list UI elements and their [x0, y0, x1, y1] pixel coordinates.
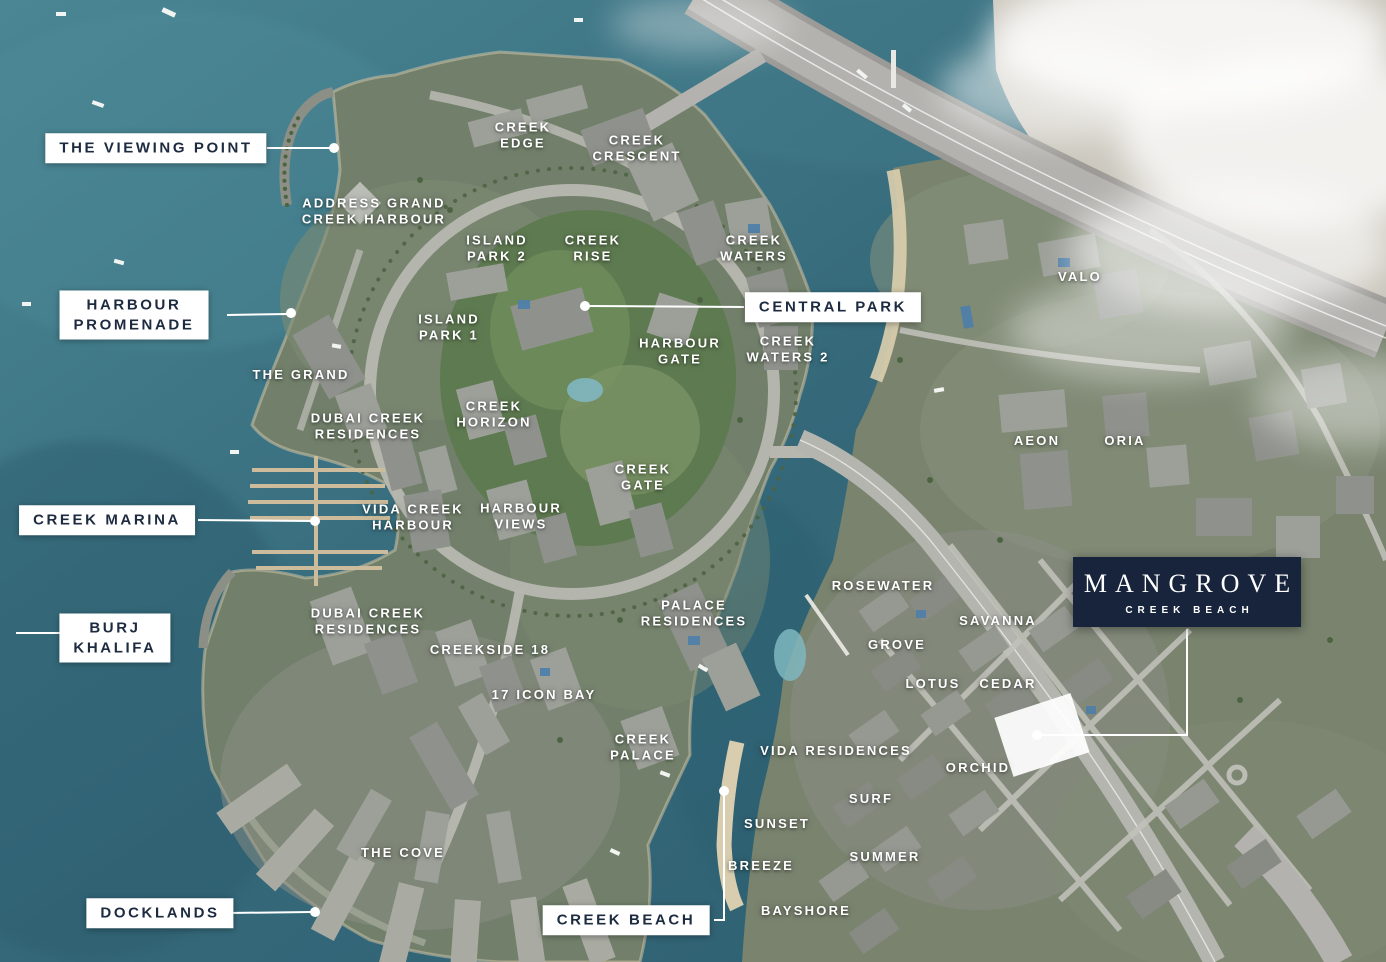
label-breeze: BREEZE	[728, 858, 794, 874]
label-creek-rise: CREEK RISE	[565, 232, 622, 263]
callout-creek-marina: CREEK MARINA	[19, 505, 195, 535]
label-harbour-gate: HARBOUR GATE	[639, 335, 721, 366]
feature-box-mangrove: MANGROVE CREEK BEACH	[1073, 557, 1301, 627]
label-vida-creek-harbour: VIDA CREEK HARBOUR	[362, 501, 464, 532]
callout-burj-khalifa: BURJ KHALIFA	[59, 614, 170, 663]
label-dubai-creek-residences-north: DUBAI CREEK RESIDENCES	[311, 410, 425, 441]
label-sunset: SUNSET	[744, 816, 810, 832]
label-creek-edge: CREEK EDGE	[495, 119, 552, 150]
label-dubai-creek-residences-south: DUBAI CREEK RESIDENCES	[311, 605, 425, 636]
label-summer: SUMMER	[850, 849, 921, 865]
callout-central-park: CENTRAL PARK	[745, 292, 921, 322]
label-island-park-2: ISLAND PARK 2	[466, 232, 528, 263]
label-creek-waters-2: CREEK WATERS 2	[746, 333, 829, 364]
label-orchid: ORCHID	[946, 760, 1010, 776]
label-surf: SURF	[849, 791, 893, 807]
masterplan-map: THE VIEWING POINT HARBOUR PROMENADE CENT…	[0, 0, 1386, 962]
label-bayshore: BAYSHORE	[761, 903, 851, 919]
label-creekside-18: CREEKSIDE 18	[430, 642, 550, 658]
label-harbour-views: HARBOUR VIEWS	[480, 500, 562, 531]
feature-title: MANGROVE	[1076, 569, 1298, 599]
label-creek-waters: CREEK WATERS	[720, 232, 788, 263]
label-palace-residences: PALACE RESIDENCES	[641, 597, 748, 628]
callout-creek-beach: CREEK BEACH	[543, 905, 710, 935]
callout-the-viewing-point: THE VIEWING POINT	[45, 133, 266, 163]
label-savanna: SAVANNA	[959, 613, 1037, 629]
label-address-grand-creek-harbour: ADDRESS GRAND CREEK HARBOUR	[302, 195, 446, 226]
label-lotus: LOTUS	[905, 676, 960, 692]
feature-subtitle: CREEK BEACH	[1120, 605, 1253, 616]
callout-harbour-promenade: HARBOUR PROMENADE	[60, 291, 209, 340]
label-oria: ORIA	[1104, 433, 1145, 449]
label-vida-residences: VIDA RESIDENCES	[760, 743, 912, 759]
label-cedar: CEDAR	[979, 676, 1036, 692]
label-the-cove: THE COVE	[361, 845, 445, 861]
label-creek-horizon: CREEK HORIZON	[456, 398, 531, 429]
label-valo: VALO	[1058, 269, 1102, 285]
label-rosewater: ROSEWATER	[832, 578, 935, 594]
callout-docklands: DOCKLANDS	[86, 898, 233, 928]
label-creek-palace: CREEK PALACE	[610, 731, 676, 762]
label-creek-gate: CREEK GATE	[615, 461, 672, 492]
label-17-icon-bay: 17 ICON BAY	[492, 687, 597, 703]
label-the-grand: THE GRAND	[252, 367, 349, 383]
label-grove: GROVE	[868, 637, 926, 653]
label-creek-crescent: CREEK CRESCENT	[592, 132, 681, 163]
label-aeon: AEON	[1014, 433, 1060, 449]
label-island-park-1: ISLAND PARK 1	[418, 311, 480, 342]
